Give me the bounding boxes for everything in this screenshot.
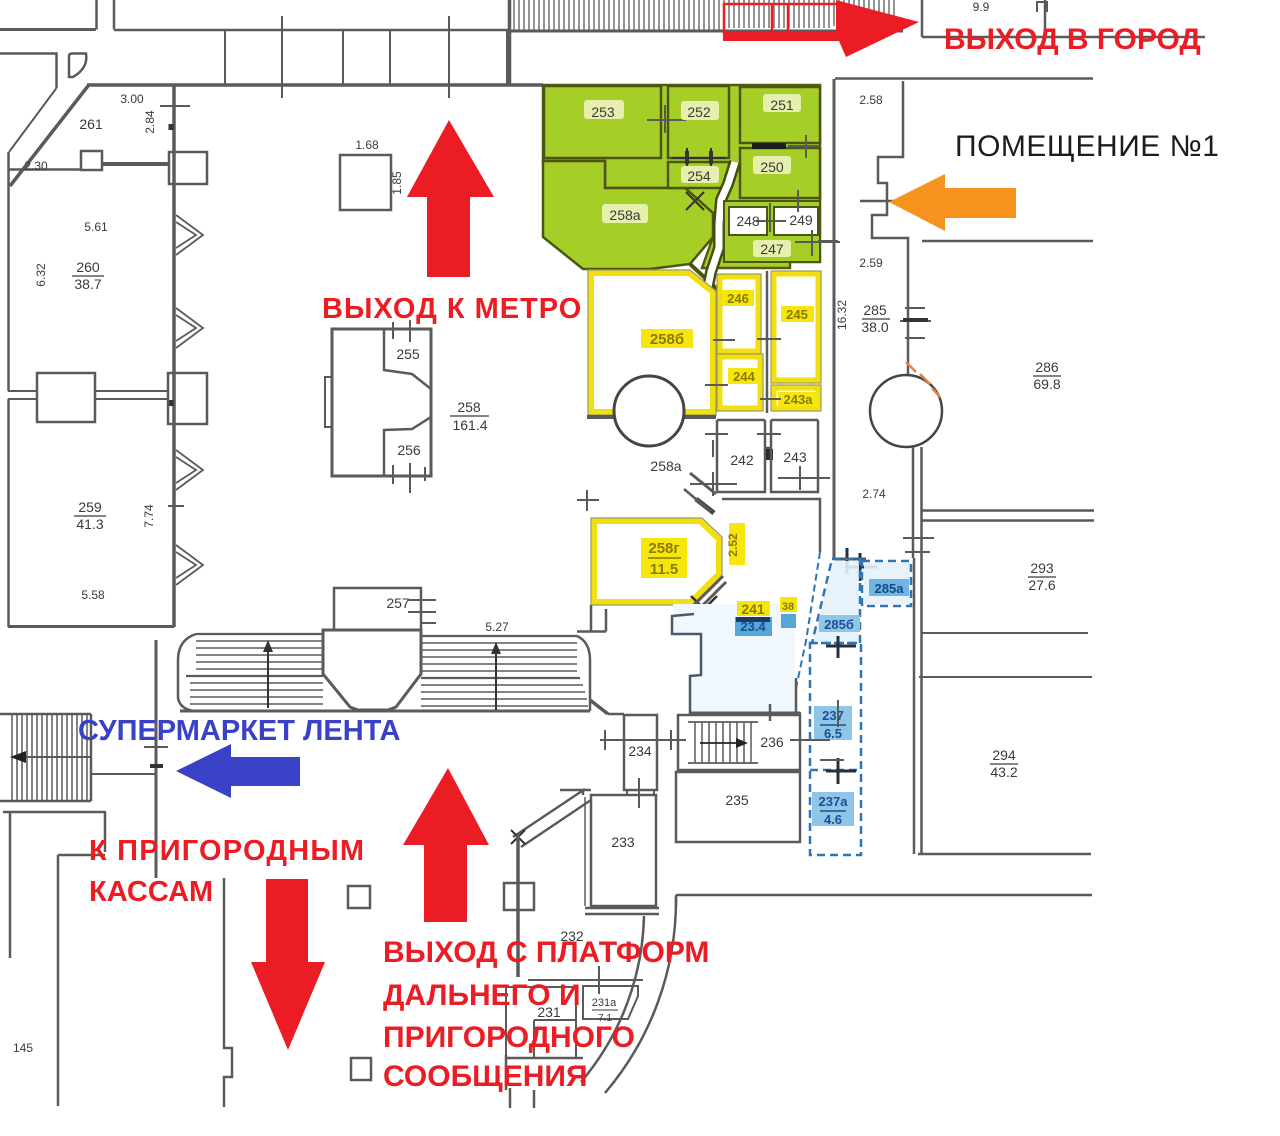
svg-text:145: 145: [13, 1041, 33, 1055]
svg-text:11.5: 11.5: [650, 561, 678, 578]
svg-text:231а: 231а: [592, 997, 617, 1009]
svg-text:294: 294: [992, 747, 1016, 763]
svg-text:161.4: 161.4: [452, 417, 487, 433]
svg-text:254: 254: [687, 168, 711, 184]
svg-text:251: 251: [770, 97, 794, 113]
svg-text:6.32: 6.32: [34, 263, 48, 287]
svg-text:2.52: 2.52: [726, 533, 740, 557]
svg-text:ВЫХОД В ГОРОД: ВЫХОД В ГОРОД: [944, 23, 1201, 56]
svg-text:248: 248: [736, 213, 760, 229]
svg-text:38: 38: [782, 601, 794, 613]
svg-text:41.3: 41.3: [76, 516, 103, 532]
svg-text:244: 244: [733, 369, 755, 384]
svg-text:286: 286: [1035, 359, 1059, 375]
svg-text:256: 256: [397, 442, 421, 458]
svg-text:2.58: 2.58: [859, 93, 883, 107]
svg-text:259: 259: [78, 499, 102, 515]
svg-text:234: 234: [628, 743, 652, 759]
svg-text:5.27: 5.27: [485, 620, 509, 634]
svg-text:38.0: 38.0: [861, 319, 888, 335]
svg-text:К ПРИГОРОДНЫМ: К ПРИГОРОДНЫМ: [89, 835, 365, 867]
svg-text:245: 245: [786, 307, 808, 322]
svg-text:2.30: 2.30: [24, 159, 48, 173]
svg-text:285а: 285а: [875, 581, 905, 596]
svg-text:235: 235: [725, 792, 749, 808]
svg-text:9.9: 9.9: [973, 0, 990, 14]
svg-text:16.32: 16.32: [835, 300, 849, 330]
svg-text:2.74: 2.74: [862, 487, 886, 501]
svg-text:69.8: 69.8: [1033, 376, 1060, 392]
svg-text:23.4: 23.4: [740, 619, 766, 634]
svg-text:2.84: 2.84: [143, 110, 157, 134]
svg-text:258а: 258а: [650, 458, 681, 474]
svg-text:258: 258: [457, 399, 481, 415]
svg-text:241: 241: [741, 601, 765, 617]
svg-text:2.59: 2.59: [859, 256, 883, 270]
svg-text:243а: 243а: [784, 392, 814, 407]
svg-text:293: 293: [1030, 560, 1054, 576]
svg-text:257: 257: [386, 595, 410, 611]
svg-text:1.68: 1.68: [355, 138, 379, 152]
svg-text:258г: 258г: [648, 540, 679, 557]
svg-text:250: 250: [760, 159, 784, 175]
svg-text:236: 236: [760, 734, 784, 750]
svg-text:ПРИГОРОДНОГО: ПРИГОРОДНОГО: [383, 1021, 635, 1054]
svg-text:242: 242: [730, 452, 754, 468]
svg-text:7.74: 7.74: [142, 504, 156, 528]
svg-text:КАССАМ: КАССАМ: [89, 876, 213, 908]
svg-text:4.6: 4.6: [824, 812, 842, 827]
svg-text:1.85: 1.85: [390, 171, 404, 195]
svg-text:ПОМЕЩЕНИЕ №1: ПОМЕЩЕНИЕ №1: [955, 130, 1219, 163]
svg-text:237а: 237а: [819, 794, 849, 809]
svg-text:237: 237: [822, 708, 844, 723]
svg-text:258а: 258а: [609, 207, 640, 223]
svg-text:255: 255: [396, 346, 420, 362]
svg-text:43.2: 43.2: [990, 764, 1017, 780]
svg-text:5.58: 5.58: [81, 588, 105, 602]
svg-text:243: 243: [783, 449, 807, 465]
svg-text:233: 233: [611, 834, 635, 850]
svg-text:ДАЛЬНЕГО И: ДАЛЬНЕГО И: [383, 979, 581, 1012]
svg-text:247: 247: [760, 241, 784, 257]
svg-text:38.7: 38.7: [74, 276, 101, 292]
svg-text:5.61: 5.61: [84, 220, 108, 234]
svg-text:СУПЕРМАРКЕТ ЛЕНТА: СУПЕРМАРКЕТ ЛЕНТА: [78, 715, 401, 747]
svg-text:285: 285: [863, 302, 887, 318]
svg-text:ВЫХОД С ПЛАТФОРМ: ВЫХОД С ПЛАТФОРМ: [383, 936, 709, 969]
svg-text:285б: 285б: [824, 617, 854, 632]
svg-text:253: 253: [591, 104, 615, 120]
svg-text:252: 252: [687, 104, 711, 120]
svg-text:6.5: 6.5: [824, 726, 842, 741]
svg-text:249: 249: [789, 212, 813, 228]
svg-text:260: 260: [76, 259, 100, 275]
svg-text:261: 261: [79, 116, 103, 132]
svg-text:258б: 258б: [650, 331, 684, 348]
svg-text:27.6: 27.6: [1028, 577, 1055, 593]
svg-text:3.00: 3.00: [120, 92, 144, 106]
svg-text:СООБЩЕНИЯ: СООБЩЕНИЯ: [383, 1060, 588, 1093]
svg-text:246: 246: [727, 291, 749, 306]
svg-text:ВЫХОД К МЕТРО: ВЫХОД К МЕТРО: [322, 293, 582, 325]
